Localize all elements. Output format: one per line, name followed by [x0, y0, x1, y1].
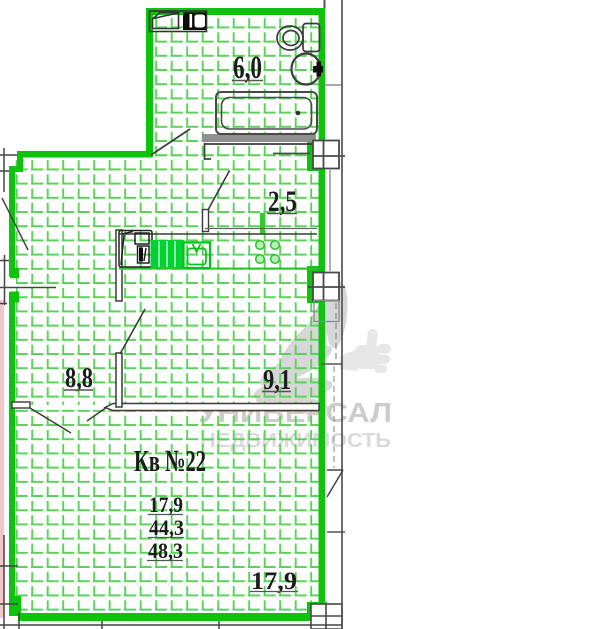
svg-text:48,3: 48,3 — [148, 538, 183, 563]
svg-text:Кв №22: Кв №22 — [134, 443, 206, 478]
svg-text:8,8: 8,8 — [65, 362, 93, 394]
svg-text:17,9: 17,9 — [149, 492, 183, 517]
svg-text:44,3: 44,3 — [149, 515, 184, 540]
